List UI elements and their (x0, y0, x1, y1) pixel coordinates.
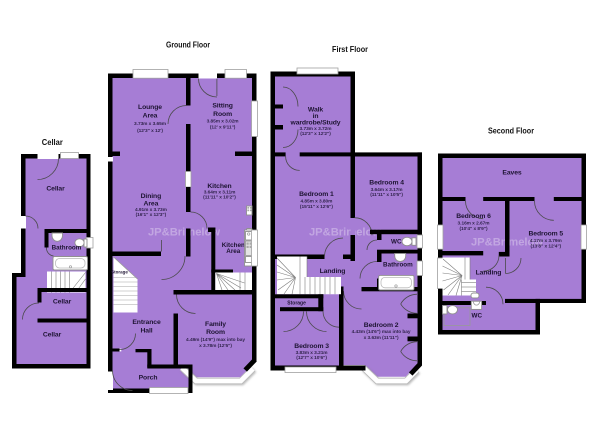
svg-text:Cellar: Cellar (46, 186, 65, 193)
svg-text:(10'4" x 8'9"): (10'4" x 8'9") (460, 226, 488, 232)
svg-text:Cellar: Cellar (42, 137, 64, 147)
svg-text:wardrobe/Study: wardrobe/Study (290, 120, 341, 127)
svg-text:Dining: Dining (141, 193, 162, 200)
svg-text:WC: WC (391, 238, 402, 245)
svg-text:(12'3" x 12'2"): (12'3" x 12'2") (300, 131, 331, 137)
svg-text:WC: WC (472, 313, 483, 320)
svg-text:(11'11" x 10'5"): (11'11" x 10'5") (370, 192, 403, 198)
svg-text:Hall: Hall (140, 328, 152, 335)
svg-text:Cellar: Cellar (43, 332, 62, 339)
svg-text:Kitchen: Kitchen (207, 183, 231, 190)
svg-text:Bedroom 3: Bedroom 3 (294, 343, 329, 350)
svg-text:Bedroom 2: Bedroom 2 (364, 322, 399, 329)
svg-text:Sitting: Sitting (212, 103, 232, 110)
svg-text:Bedroom 4: Bedroom 4 (369, 180, 404, 187)
svg-text:Entrance: Entrance (132, 319, 161, 326)
svg-text:(12' x 9'11"): (12' x 9'11") (210, 124, 236, 130)
svg-text:4.17m x 3.79m: 4.17m x 3.79m (530, 238, 562, 244)
svg-text:Second Floor: Second Floor (488, 126, 535, 136)
svg-text:x 3.63m (11'11"): x 3.63m (11'11") (364, 335, 399, 341)
svg-text:Ground Floor: Ground Floor (166, 39, 211, 49)
svg-text:3.73m x 3.65m: 3.73m x 3.65m (134, 121, 166, 127)
svg-text:Landing: Landing (476, 269, 502, 276)
svg-text:Bathroom: Bathroom (52, 245, 82, 252)
svg-text:Family: Family (205, 321, 226, 328)
svg-text:Lounge: Lounge (138, 104, 162, 111)
svg-text:(15'11" x 12'6"): (15'11" x 12'6") (300, 204, 333, 210)
svg-text:Landing: Landing (320, 268, 346, 275)
svg-text:4.85m x 3.80m: 4.85m x 3.80m (300, 198, 332, 204)
svg-text:First Floor: First Floor (332, 44, 369, 54)
svg-text:3.85m x 3.02m: 3.85m x 3.02m (207, 118, 239, 124)
svg-text:(13'8" x 12'4"): (13'8" x 12'4") (530, 243, 561, 249)
svg-text:x 3.78m (12'5"): x 3.78m (12'5") (199, 343, 232, 349)
svg-text:Bedroom 6: Bedroom 6 (456, 213, 491, 220)
svg-text:Bedroom 5: Bedroom 5 (528, 230, 563, 237)
svg-text:Area: Area (143, 113, 158, 120)
svg-text:Porch: Porch (139, 375, 158, 382)
svg-text:4.49m (14'9") max into bay: 4.49m (14'9") max into bay (186, 337, 245, 343)
svg-text:Area: Area (144, 201, 159, 208)
svg-text:(11'11" x 10'2"): (11'11" x 10'2") (203, 194, 236, 200)
svg-text:(12'7" x 10'6"): (12'7" x 10'6") (296, 355, 327, 361)
svg-text:(16'1" x 12'3"): (16'1" x 12'3") (136, 212, 167, 218)
svg-text:Cellar: Cellar (53, 299, 72, 306)
svg-text:Bathroom: Bathroom (383, 261, 413, 268)
svg-text:Room: Room (213, 111, 232, 118)
svg-text:Storage: Storage (287, 300, 306, 306)
svg-text:(12'3" x 12'): (12'3" x 12') (137, 128, 163, 134)
svg-text:Area: Area (226, 248, 240, 255)
svg-text:Eaves: Eaves (502, 170, 521, 177)
svg-text:4.43m (14'6") max into bay: 4.43m (14'6") max into bay (352, 329, 411, 335)
svg-text:3.16m x 2.67m: 3.16m x 2.67m (458, 220, 490, 226)
svg-text:Storage: Storage (111, 270, 128, 275)
svg-text:Bedroom 1: Bedroom 1 (299, 191, 334, 198)
svg-text:Room: Room (206, 329, 225, 336)
